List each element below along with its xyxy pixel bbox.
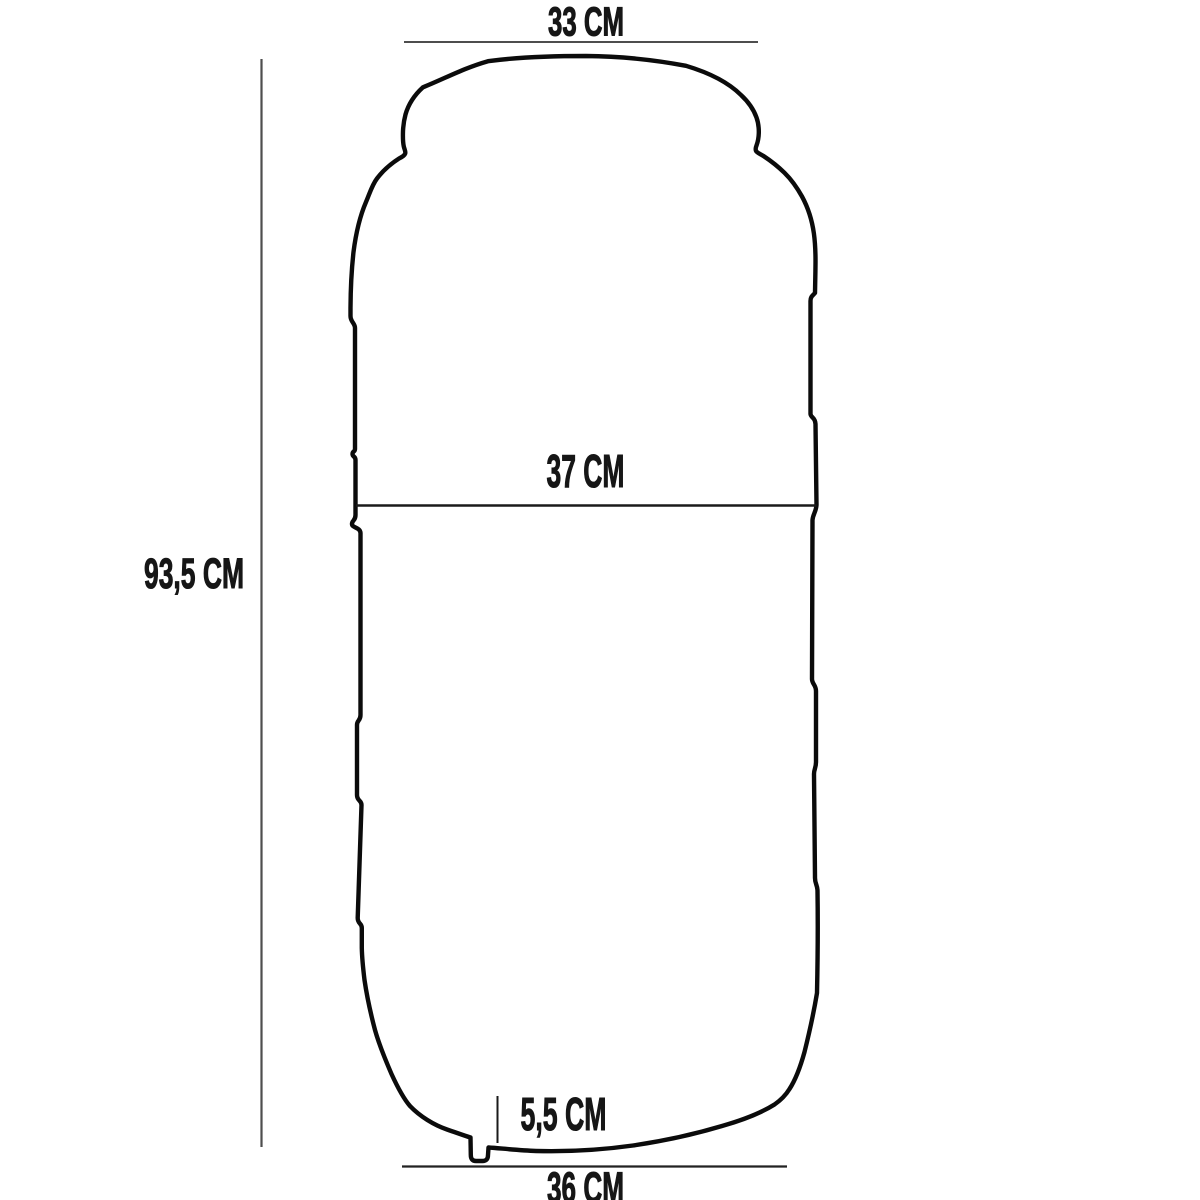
- svg-text:37 CM: 37 CM: [547, 445, 625, 497]
- svg-text:33 CM: 33 CM: [548, 0, 624, 45]
- svg-text:93,5 CM: 93,5 CM: [144, 550, 244, 598]
- svg-text:5,5 CM: 5,5 CM: [521, 1088, 607, 1140]
- svg-text:36 CM: 36 CM: [547, 1164, 624, 1200]
